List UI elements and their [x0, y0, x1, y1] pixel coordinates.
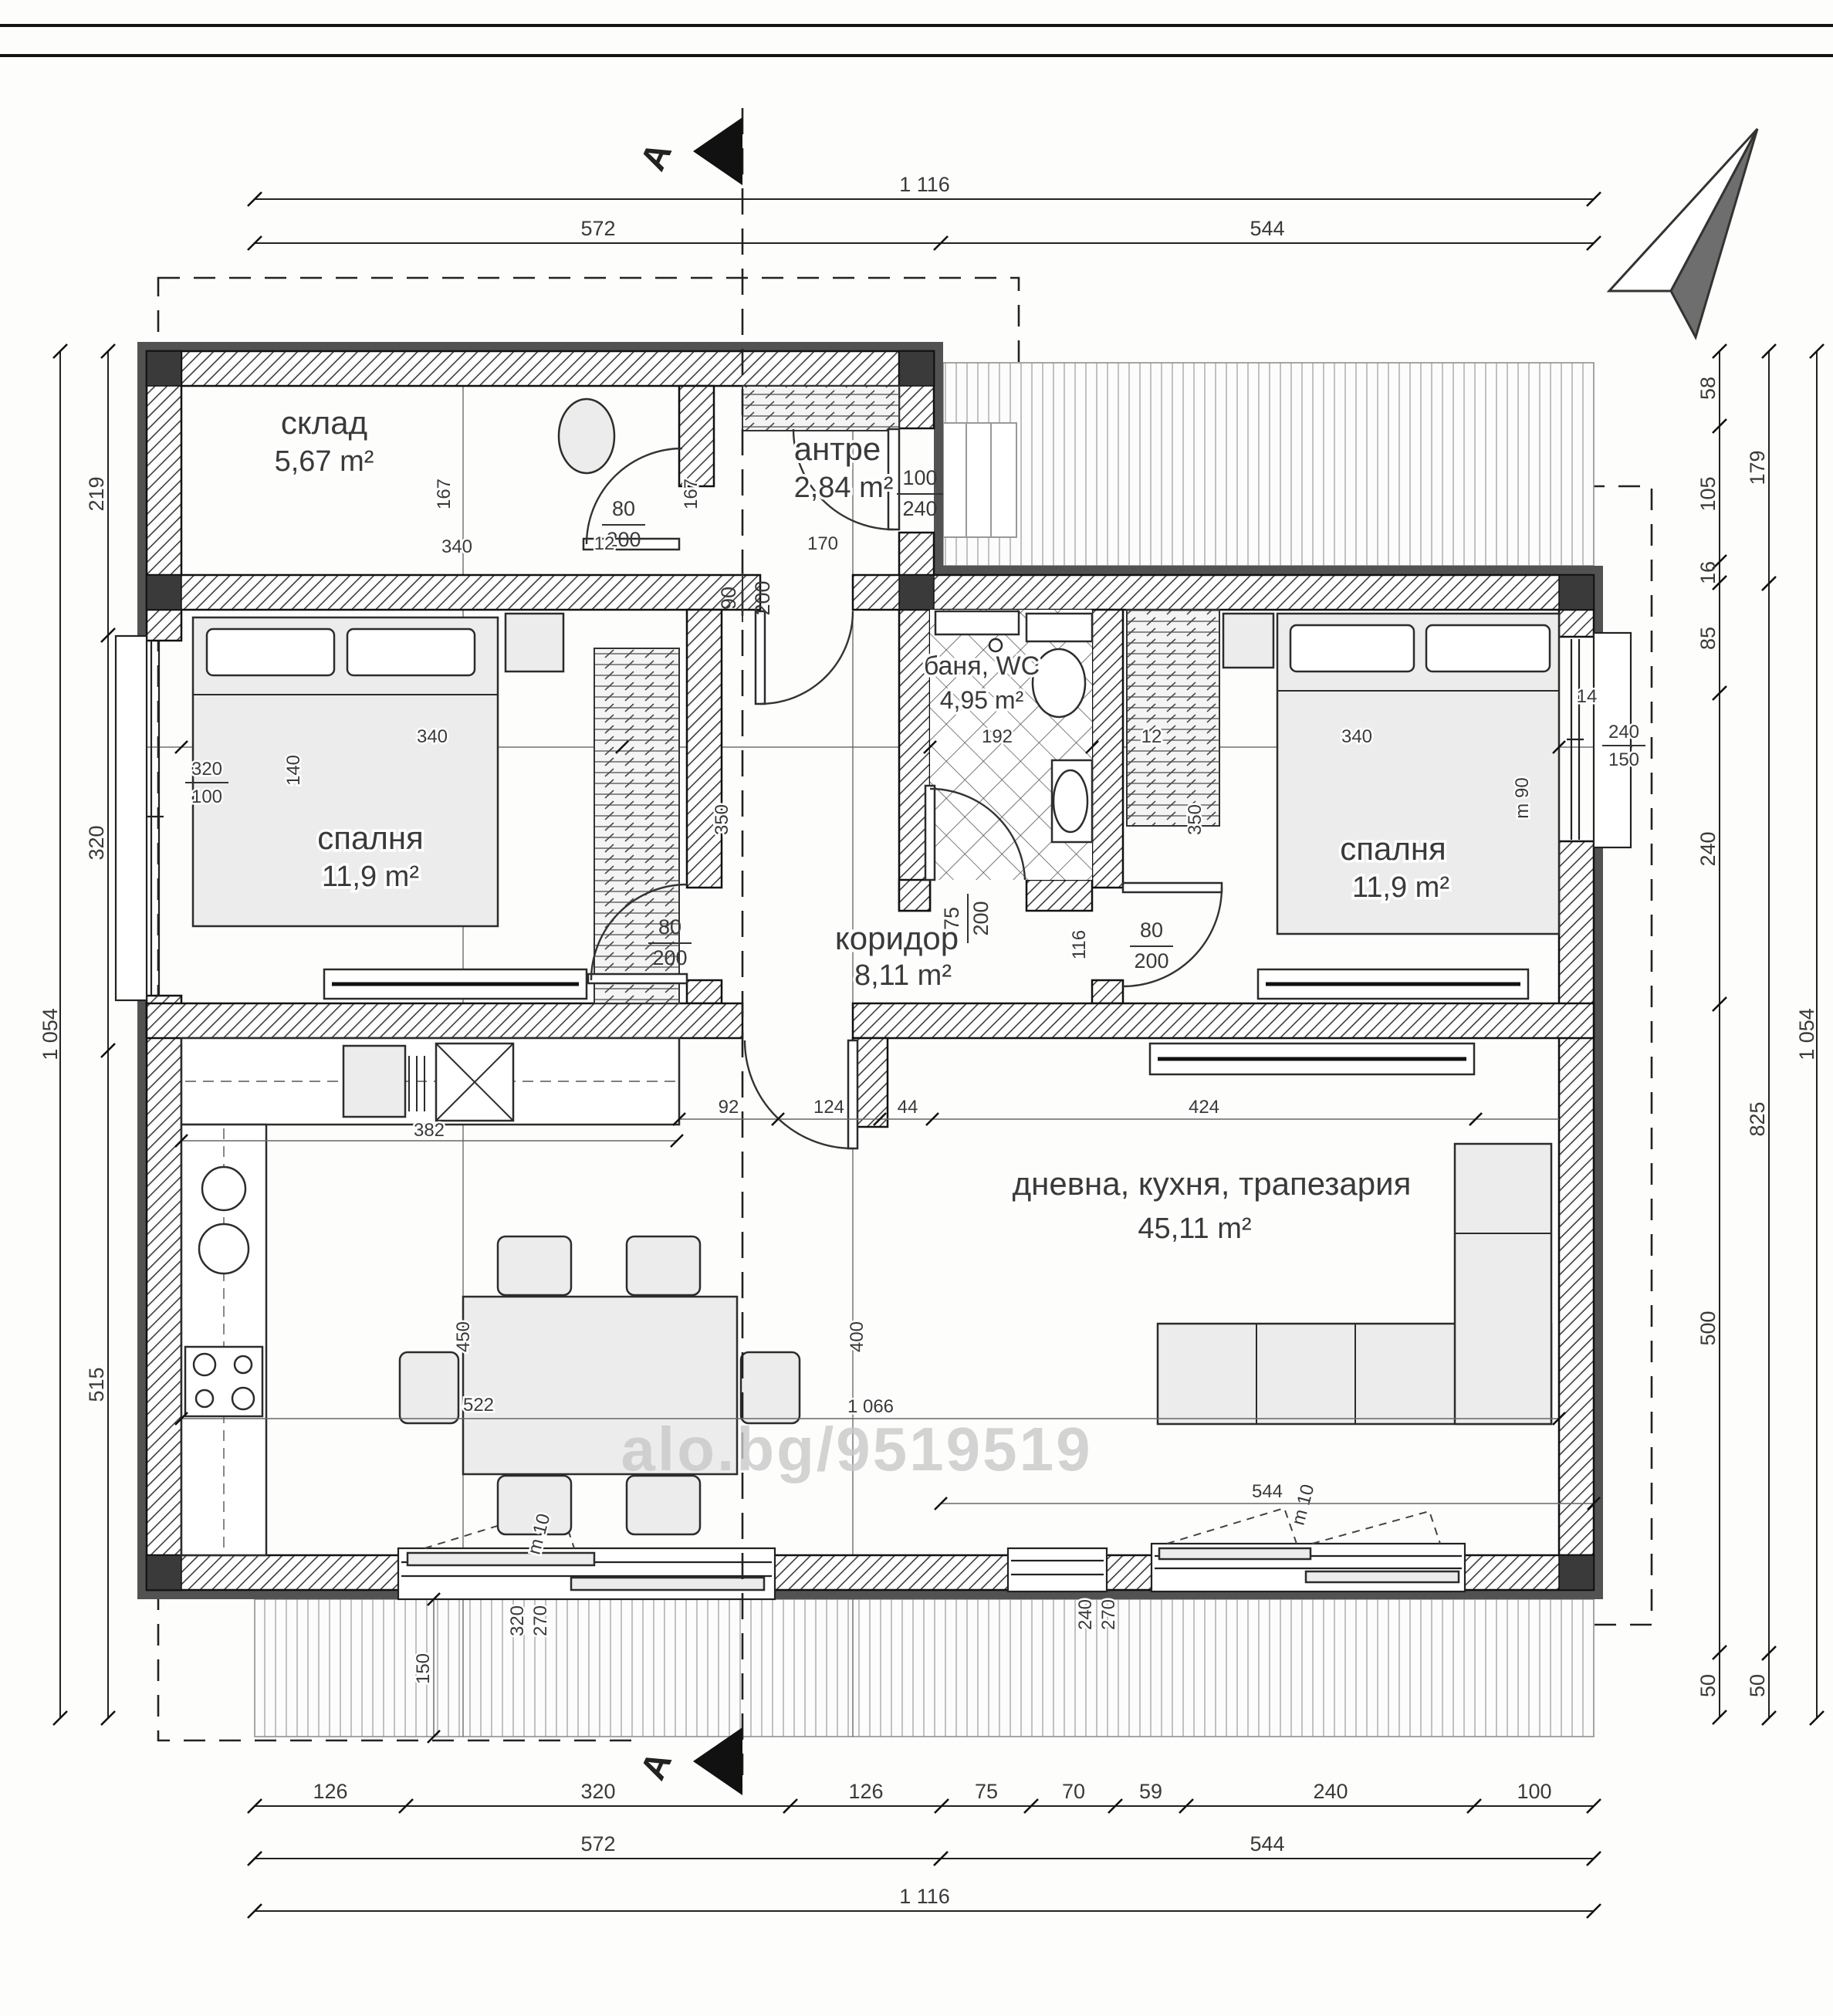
- section-label-bottom: A: [632, 1745, 679, 1785]
- room-hall-name: антре: [794, 431, 881, 467]
- kitchen-counter-left: [181, 1125, 266, 1555]
- dim-b1-240: 240: [1313, 1780, 1348, 1803]
- dim-bedleft-w: 340: [417, 726, 448, 747]
- dim-12b: 12: [1141, 726, 1162, 747]
- room-storage-name: склад: [281, 404, 367, 441]
- radiator-living: [1150, 1044, 1474, 1074]
- door-bedleft-height: 200: [652, 946, 687, 969]
- nightstand-left: [506, 614, 563, 671]
- room-bedroom-right-name: спалня: [1340, 830, 1446, 867]
- door-bath-height: 200: [969, 901, 993, 935]
- window-right-width: 240: [1608, 722, 1639, 742]
- window-bottomright-height: 270: [1098, 1599, 1119, 1630]
- dim-b2-572: 572: [580, 1832, 615, 1855]
- stove: [185, 1347, 262, 1416]
- dim-storage-h: 167: [434, 479, 455, 509]
- window-left-sill: 140: [283, 755, 304, 786]
- dim-right-16: 16: [1696, 561, 1720, 584]
- window-bottom-left-slider: [398, 1507, 775, 1599]
- dim-544: 544: [1252, 1481, 1283, 1502]
- dim-right-50b: 50: [1746, 1674, 1769, 1697]
- dim-424: 424: [1189, 1097, 1219, 1118]
- dim-corridor-w: 116: [1069, 930, 1090, 959]
- dim-deck-d: 150: [413, 1653, 434, 1684]
- door-hall-width: 90: [717, 587, 740, 610]
- dim-b3-total: 1 116: [899, 1885, 950, 1908]
- door-entry-width: 100: [902, 466, 937, 489]
- dim-bedleft-d: 350: [712, 804, 732, 835]
- section-label-top: A: [632, 136, 679, 176]
- section-arrow-top: [693, 117, 742, 185]
- sink-bowl-1: [202, 1167, 245, 1210]
- window-right-sill: m 90: [1512, 777, 1533, 818]
- dim-left-320: 320: [85, 825, 108, 860]
- dim-right-85: 85: [1696, 627, 1720, 650]
- nightstand-right: [1223, 614, 1273, 668]
- door-bedleft-width: 80: [658, 915, 681, 939]
- room-bath-name: баня, WC: [924, 651, 1040, 681]
- door-entry-height: 240: [902, 497, 937, 520]
- dim-b1-320: 320: [580, 1780, 615, 1803]
- dim-kitchen-d: 450: [453, 1321, 474, 1352]
- room-storage-area: 5,67 m²: [275, 445, 374, 478]
- dim-top-total: 1 116: [899, 173, 950, 196]
- dim-b1-59: 59: [1139, 1780, 1162, 1803]
- door-corridor-living: [745, 1040, 857, 1148]
- boiler: [559, 399, 614, 473]
- window-bottomright-width: 240: [1075, 1599, 1096, 1630]
- sheet-border: [0, 25, 1833, 56]
- room-bedroom-right-area: 11,9 m²: [1352, 871, 1449, 904]
- dim-living-w: 1 066: [847, 1396, 894, 1417]
- dishwasher: [343, 1046, 405, 1117]
- dim-b1-75: 75: [975, 1780, 998, 1803]
- window-left-height: 100: [191, 786, 222, 807]
- floor-plan-sheet: A A склад 5,67 m² антре 2,84 m² спалня 1…: [0, 0, 1833, 2016]
- dim-b1-70: 70: [1062, 1780, 1085, 1803]
- dim-left-515: 515: [85, 1367, 108, 1402]
- door-hall-height: 200: [751, 580, 774, 615]
- room-living-name: дневна, кухня, трапезария: [1013, 1165, 1412, 1202]
- room-living-area: 45,11 m²: [1138, 1213, 1251, 1245]
- dining-set: [400, 1236, 800, 1534]
- dim-living-d: 400: [847, 1321, 867, 1352]
- room-hall-area: 2,84 m²: [794, 472, 894, 504]
- dim-right-500: 500: [1696, 1311, 1720, 1345]
- dim-bedright-w: 340: [1341, 726, 1372, 747]
- washbasin: [1052, 760, 1092, 842]
- door-bedright-height: 200: [1134, 949, 1168, 972]
- dim-storage-w: 340: [441, 536, 472, 557]
- dim-92: 92: [719, 1097, 739, 1118]
- dim-left-outer: 1 054: [39, 1008, 62, 1060]
- window-bottomleft-height: 270: [530, 1605, 551, 1636]
- door-storage-width: 80: [612, 497, 635, 520]
- dim-hall-w: 170: [807, 533, 838, 554]
- dim-top-572: 572: [580, 217, 615, 240]
- dim-b1-126b: 126: [848, 1780, 883, 1803]
- sink-bowl-2: [199, 1224, 249, 1274]
- dim-right-825: 825: [1746, 1101, 1769, 1136]
- floor-plan-drawing: A A склад 5,67 m² антре 2,84 m² спалня 1…: [0, 0, 1833, 2016]
- room-bedroom-left-name: спалня: [317, 820, 424, 856]
- door-bath-width: 75: [940, 907, 963, 930]
- window-bottom-small: [1008, 1548, 1107, 1591]
- dim-b2-544: 544: [1250, 1832, 1284, 1855]
- dim-124: 124: [813, 1097, 844, 1118]
- dim-right-240: 240: [1696, 831, 1720, 866]
- dim-b1-126: 126: [313, 1780, 347, 1803]
- room-bedroom-left-area: 11,9 m²: [322, 861, 419, 893]
- section-arrow-bottom: [693, 1727, 742, 1795]
- window-left-width: 320: [191, 759, 222, 780]
- north-arrow-icon: [1609, 129, 1757, 337]
- dim-top-544: 544: [1250, 217, 1284, 240]
- door-hall: [756, 611, 853, 704]
- dim-counter: 382: [414, 1120, 445, 1141]
- room-corridor-area: 8,11 m²: [854, 959, 952, 992]
- dim-bath-w: 192: [982, 726, 1013, 747]
- window-bottomleft-width: 320: [507, 1605, 528, 1636]
- radiator-bedroom-right: [1258, 969, 1528, 999]
- window-left: [116, 636, 164, 1000]
- dim-44: 44: [898, 1097, 918, 1118]
- radiator-bedroom-left: [324, 969, 587, 999]
- window-bottomright-mark: m 10: [1288, 1482, 1319, 1527]
- window-right-offset: 14: [1577, 686, 1598, 707]
- watermark: alo.bg/9519519: [621, 1415, 1092, 1483]
- dim-bedright-d: 350: [1185, 804, 1206, 835]
- entry-porch: [943, 423, 1016, 537]
- kitchen-counter-top: [181, 1038, 679, 1125]
- dim-right-179: 179: [1746, 450, 1769, 485]
- dim-right-outer: 1 054: [1795, 1008, 1818, 1060]
- hob: [436, 1044, 513, 1121]
- dim-entry-h: 167: [681, 479, 702, 509]
- dim-right-50a: 50: [1696, 1674, 1720, 1697]
- window-right-height: 150: [1608, 749, 1639, 770]
- room-bath-area: 4,95 m²: [940, 686, 1024, 714]
- door-bedright-width: 80: [1140, 918, 1163, 942]
- dim-12a: 12: [594, 533, 615, 554]
- dim-522: 522: [463, 1395, 494, 1416]
- dim-right-105: 105: [1696, 476, 1720, 511]
- dim-right-58: 58: [1696, 377, 1720, 400]
- dim-b1-100: 100: [1517, 1780, 1551, 1803]
- dim-left-219: 219: [85, 476, 108, 511]
